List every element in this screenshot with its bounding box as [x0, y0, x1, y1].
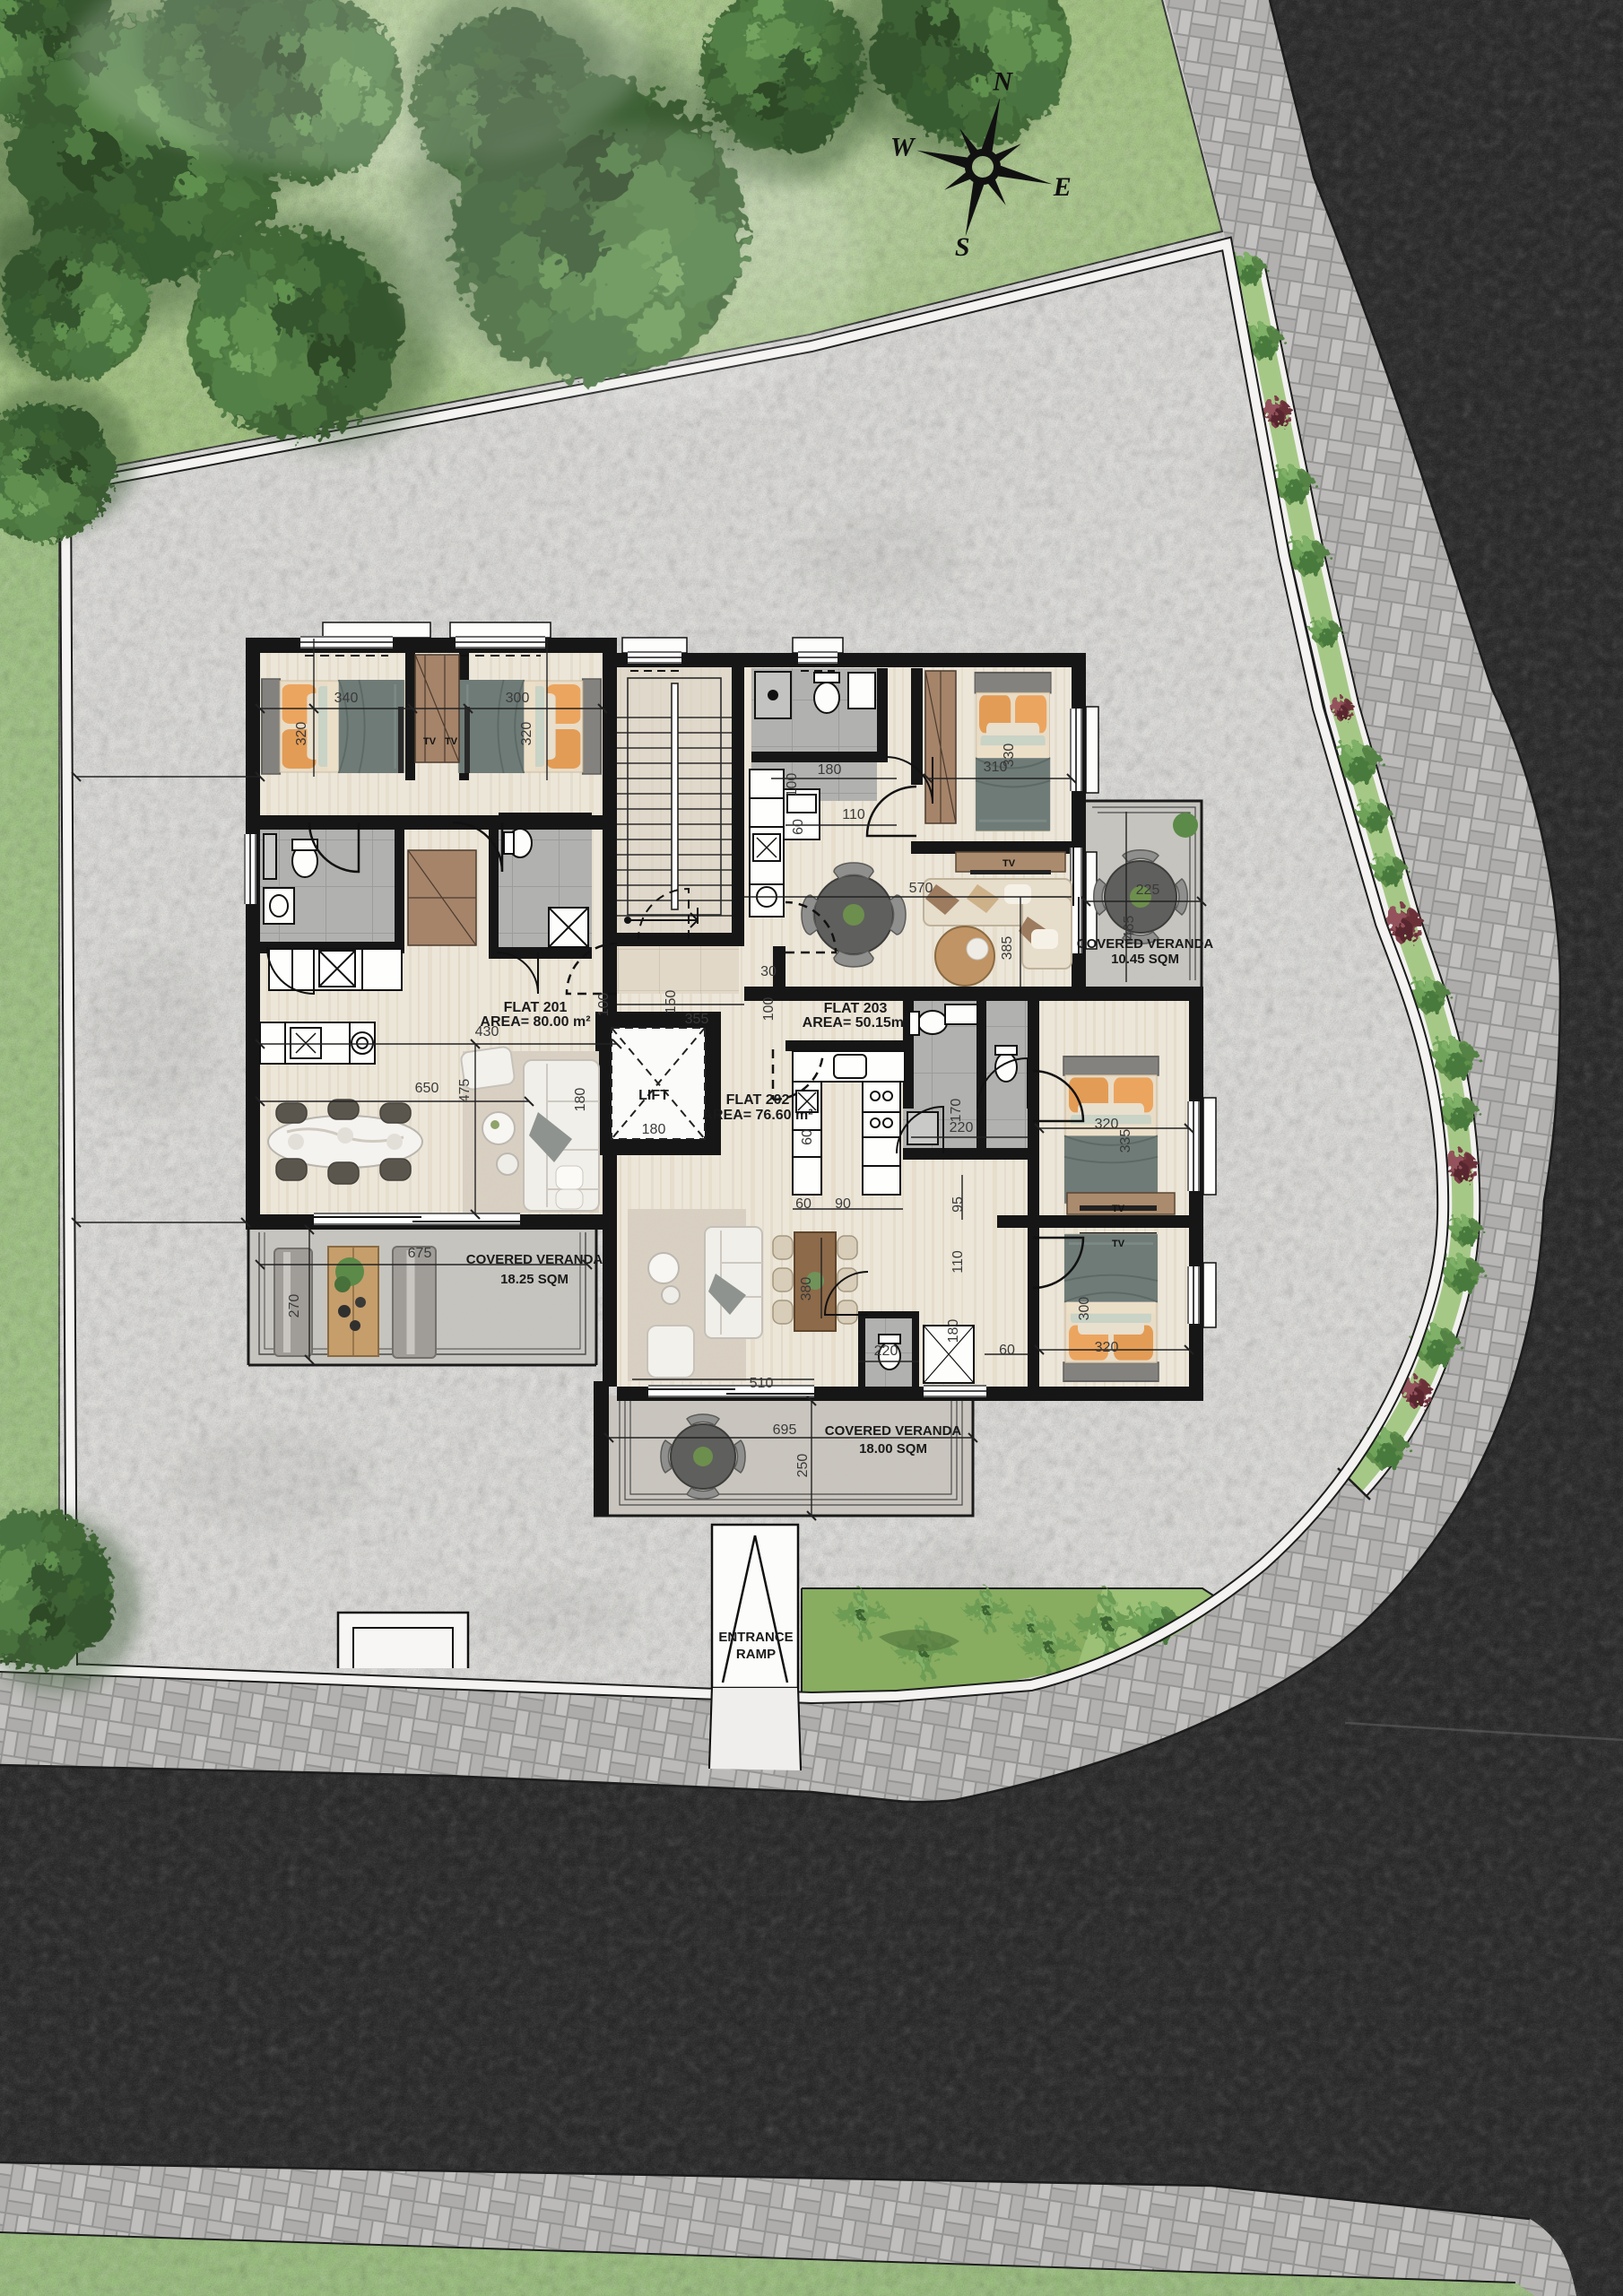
- svg-text:380: 380: [799, 1277, 814, 1301]
- svg-text:TV: TV: [445, 736, 458, 747]
- svg-text:570: 570: [909, 881, 933, 896]
- svg-text:95: 95: [950, 1196, 966, 1213]
- svg-text:180: 180: [946, 1319, 961, 1344]
- svg-text:335: 335: [1118, 1129, 1133, 1153]
- svg-text:18.00 SQM: 18.00 SQM: [859, 1441, 927, 1457]
- svg-text:S: S: [955, 232, 970, 262]
- svg-text:TV: TV: [1112, 1204, 1125, 1214]
- svg-text:TV: TV: [1002, 858, 1016, 869]
- svg-text:695: 695: [773, 1422, 797, 1438]
- svg-text:18.25 SQM: 18.25 SQM: [500, 1272, 568, 1287]
- svg-text:COVERED VERANDA: COVERED VERANDA: [825, 1423, 962, 1439]
- svg-text:W: W: [890, 133, 916, 162]
- svg-text:320: 320: [294, 722, 309, 746]
- svg-text:TV: TV: [423, 736, 437, 747]
- svg-text:675: 675: [408, 1246, 432, 1261]
- svg-text:180: 180: [642, 1122, 666, 1137]
- svg-text:ENTRANCE: ENTRANCE: [718, 1630, 793, 1645]
- svg-text:AREA= 80.00 m²: AREA= 80.00 m²: [480, 1014, 590, 1030]
- svg-text:AREA= 50.15m²: AREA= 50.15m²: [803, 1015, 909, 1031]
- svg-text:100: 100: [596, 993, 612, 1017]
- svg-text:150: 150: [664, 990, 679, 1014]
- svg-text:170: 170: [949, 1099, 964, 1123]
- svg-text:320: 320: [1095, 1117, 1119, 1132]
- svg-text:100: 100: [761, 997, 777, 1022]
- svg-text:225: 225: [1136, 883, 1160, 898]
- svg-text:RAMP: RAMP: [736, 1647, 776, 1662]
- svg-text:320: 320: [1095, 1340, 1119, 1355]
- svg-text:COVERED VERANDA: COVERED VERANDA: [1077, 936, 1214, 952]
- svg-text:60: 60: [795, 1196, 811, 1212]
- svg-text:FLAT 202: FLAT 202: [726, 1092, 790, 1108]
- svg-text:10.45 SQM: 10.45 SQM: [1111, 952, 1179, 967]
- svg-text:60: 60: [800, 1129, 815, 1145]
- svg-text:TV: TV: [1112, 1239, 1125, 1249]
- svg-text:N: N: [992, 67, 1013, 97]
- svg-text:510: 510: [750, 1376, 774, 1391]
- svg-text:220: 220: [950, 1120, 974, 1135]
- svg-text:650: 650: [415, 1081, 439, 1096]
- svg-text:475: 475: [457, 1079, 473, 1103]
- svg-text:355: 355: [685, 1012, 709, 1027]
- svg-text:60: 60: [999, 1343, 1015, 1358]
- svg-text:320: 320: [519, 722, 534, 746]
- svg-text:300: 300: [1077, 1297, 1092, 1321]
- svg-text:300: 300: [506, 691, 530, 706]
- svg-text:E: E: [1053, 172, 1072, 202]
- svg-text:385: 385: [1000, 936, 1015, 961]
- svg-text:110: 110: [842, 807, 865, 822]
- svg-text:60: 60: [791, 819, 806, 835]
- svg-text:FLAT 201: FLAT 201: [504, 1000, 568, 1015]
- svg-text:180: 180: [573, 1088, 588, 1112]
- svg-text:220: 220: [874, 1344, 898, 1359]
- svg-text:30: 30: [760, 964, 777, 979]
- svg-text:180: 180: [818, 762, 842, 778]
- svg-text:110: 110: [950, 1250, 966, 1274]
- svg-text:250: 250: [795, 1454, 811, 1478]
- svg-text:AREA= 76.60 m²: AREA= 76.60 m²: [702, 1108, 812, 1123]
- svg-text:FLAT 203: FLAT 203: [824, 1001, 888, 1016]
- svg-text:90: 90: [835, 1196, 851, 1212]
- svg-text:340: 340: [334, 691, 359, 706]
- svg-text:COVERED VERANDA: COVERED VERANDA: [466, 1252, 603, 1267]
- svg-text:330: 330: [1002, 744, 1017, 768]
- svg-text:LIFT: LIFT: [638, 1088, 669, 1103]
- svg-text:270: 270: [287, 1294, 302, 1318]
- svg-text:100: 100: [785, 773, 800, 797]
